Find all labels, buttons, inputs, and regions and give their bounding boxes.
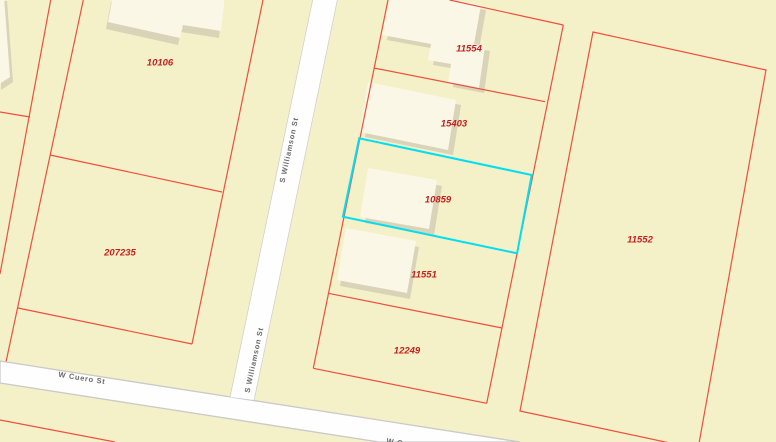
parcel-label-207235[interactable]: 207235 bbox=[103, 248, 136, 259]
parcel-label-10859[interactable]: 10859 bbox=[425, 195, 452, 206]
parcel-label-11554[interactable]: 11554 bbox=[456, 44, 482, 55]
parcel-label-15403[interactable]: 15403 bbox=[441, 119, 468, 130]
parcel-label-10106[interactable]: 10106 bbox=[147, 58, 174, 69]
parcel-label-11551[interactable]: 11551 bbox=[411, 270, 437, 281]
parcel-label-11552[interactable]: 11552 bbox=[627, 235, 653, 246]
parcel-map-canvas: S Williamson StS Williamson StW Cuero St… bbox=[0, 0, 776, 442]
map-viewport[interactable]: S Williamson StS Williamson StW Cuero St… bbox=[0, 0, 776, 442]
parcel-label-12249[interactable]: 12249 bbox=[394, 346, 421, 357]
